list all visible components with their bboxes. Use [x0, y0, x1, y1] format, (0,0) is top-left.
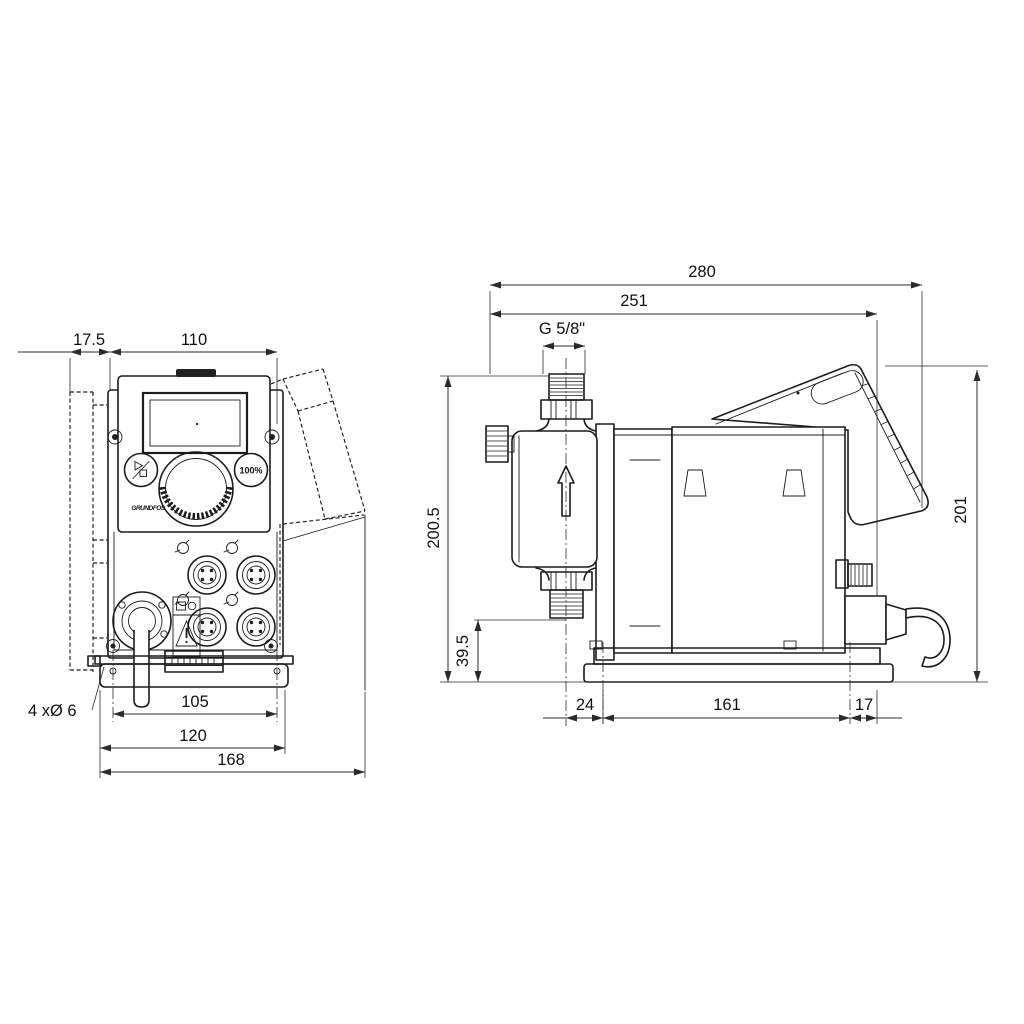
- dosing-head: [512, 431, 597, 567]
- vent-valve: [486, 426, 514, 462]
- button-100-label: 100%: [239, 466, 262, 476]
- dim-label-17-5: 17.5: [73, 331, 105, 349]
- dim-label-39-5: 39.5: [454, 635, 472, 667]
- dim-label-110: 110: [181, 331, 207, 349]
- inlet-nut: [541, 400, 592, 419]
- front-view: 100% GRUNDFOS: [18, 331, 365, 778]
- junction-box: [845, 596, 886, 644]
- dim-label-24: 24: [576, 696, 594, 714]
- dim-label-161: 161: [713, 696, 741, 714]
- io-icon: [175, 540, 189, 554]
- side-view: 280 251 G 5/8" 200.5 39.5 201 24: [425, 263, 988, 726]
- dim-label-200-5: 200.5: [425, 507, 443, 548]
- thread-label: G 5/8": [539, 320, 585, 338]
- dim-label-120: 120: [179, 727, 207, 745]
- pump-dimension-drawing: 100% GRUNDFOS: [0, 0, 1024, 1024]
- dim-label-251: 251: [620, 292, 648, 310]
- strain-relief: [886, 604, 906, 640]
- technical-drawing-page: 100% GRUNDFOS: [0, 0, 1024, 1024]
- pump-head: [486, 358, 597, 726]
- power-cable-side: [906, 608, 950, 667]
- mounting-plate-front: [88, 650, 293, 722]
- mounting-clip: [165, 651, 223, 672]
- outlet-nut: [541, 572, 592, 590]
- power-cable-front: [134, 630, 149, 707]
- connector: [188, 556, 226, 594]
- wall-plate-outline: [70, 392, 108, 672]
- dim-label-17: 17: [855, 696, 873, 714]
- dim-label-201: 201: [952, 496, 970, 524]
- pump-body-side: [596, 424, 845, 660]
- grundfos-logo: GRUNDFOS: [131, 505, 165, 512]
- hood-open-outline: [271, 369, 365, 690]
- cable-gland-front: [113, 592, 171, 707]
- dim-label-168: 168: [217, 751, 245, 769]
- dim-label-280: 280: [688, 263, 716, 281]
- connector: [237, 608, 275, 646]
- connector: [237, 556, 275, 594]
- top-tab: [176, 369, 216, 377]
- warning-label: [173, 597, 200, 657]
- dim-label-105: 105: [181, 693, 209, 711]
- connector: [188, 608, 226, 646]
- io-icon: [175, 592, 189, 606]
- io-icon: [224, 540, 238, 554]
- io-icon: [224, 592, 238, 606]
- cable-gland-side: [836, 560, 950, 667]
- hole-note: 4 xØ 6: [28, 702, 77, 720]
